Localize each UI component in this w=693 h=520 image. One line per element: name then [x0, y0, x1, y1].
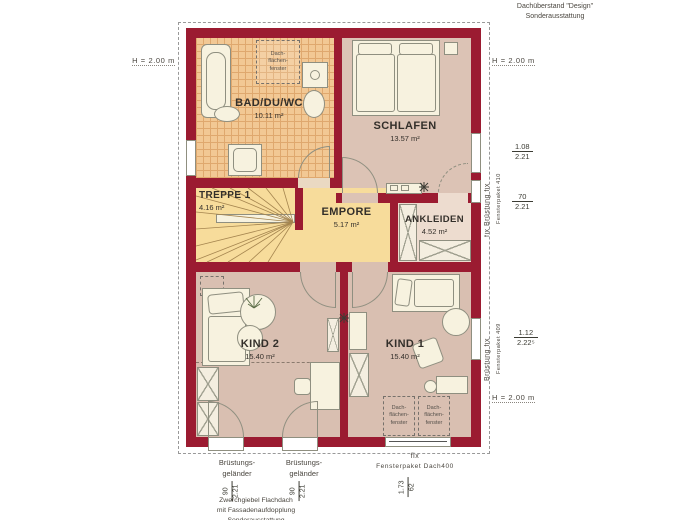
footer-note: Zwerchgiebel Flachdach mit Fassadenaufdo…: [183, 496, 329, 520]
dach400-fix-label: fix: [375, 453, 455, 460]
door-leaf-kind2: [335, 272, 336, 308]
room-area: 15.40 m²: [360, 352, 450, 361]
room-area: 10.11 m²: [210, 111, 328, 120]
room-name: SCHLAFEN: [345, 120, 465, 132]
room-label-schlafen: SCHLAFEN 13.57 m²: [345, 120, 465, 143]
room-name: KIND 2: [215, 338, 305, 350]
room-name: KIND 1: [360, 338, 450, 350]
door-leaf-schlafen: [342, 157, 343, 193]
window-410-label: fix Brüstung fix: [484, 105, 491, 237]
roof-overhang-line: Sonderausstattung: [526, 13, 585, 20]
railing-label-left: Brüstungs- geländer: [203, 458, 271, 480]
railing-line: geländer: [289, 469, 318, 478]
window-410-package: Fensterpaket 410: [496, 118, 502, 224]
footer-line: mit Fassadenaufdopplung: [217, 507, 295, 514]
height-value: H = 2.00 m: [492, 393, 535, 403]
room-area: 13.57 m²: [345, 134, 465, 143]
height-value: H = 2.00 m: [132, 56, 175, 66]
dim-numerator: 1.12: [514, 328, 538, 338]
room-area: 5.17 m²: [303, 220, 390, 229]
plant-symbol: [246, 296, 262, 308]
room-name: TREPPE 1: [199, 190, 291, 201]
dim-denominator: 2.21: [512, 152, 533, 161]
balcony-door-leaf-left: [208, 401, 209, 437]
room-label-treppe: TREPPE 1 4.16 m²: [199, 190, 291, 212]
dach400-package-label: Fensterpaket Dach400: [358, 463, 472, 470]
room-name: BAD/DU/WC: [210, 97, 328, 109]
room-label-bad: BAD/DU/WC 10.11 m²: [210, 97, 328, 120]
light-symbol-kind: [339, 313, 349, 323]
dim-numerator: 1.73: [399, 477, 409, 497]
room-label-empore: EMPORE 5.17 m²: [303, 206, 390, 229]
plan-drawing-overlay: [0, 0, 693, 520]
window-409-label: Brüstung fix: [484, 255, 491, 381]
window-409-package: Fensterpaket 409: [496, 268, 502, 374]
room-label-ankleiden: ANKLEIDEN 4.52 m²: [396, 214, 473, 236]
room-name: EMPORE: [303, 206, 390, 218]
roof-overhang-line: Dachüberstand "Design": [517, 3, 593, 10]
dim-denominator: 62: [408, 477, 417, 497]
dim-denominator: 2.21: [512, 202, 533, 211]
door-leaf-bad: [329, 146, 330, 178]
balcony-door-leaf-right: [317, 401, 318, 437]
railing-line: geländer: [222, 469, 251, 478]
window-410-dim-top: 1.08 2.21: [512, 142, 533, 162]
room-area: 4.16 m²: [199, 203, 291, 212]
railing-line: Brüstungs-: [286, 458, 322, 467]
window-410-dim-bottom: 70 2.21: [512, 192, 533, 212]
room-label-kind2: KIND 2 15.40 m²: [215, 338, 305, 361]
railing-label-right: Brüstungs- geländer: [270, 458, 338, 480]
window-409-dim: 1.12 2.22⁵: [514, 328, 538, 348]
room-area: 15.40 m²: [215, 352, 305, 361]
door-leaf-kind1: [352, 272, 353, 308]
dim-numerator: 70: [512, 192, 533, 202]
floor-plan-canvas: Dach- flächen- fenster Dach- flächen- fe…: [0, 0, 693, 520]
room-area: 4.52 m²: [396, 227, 473, 236]
room-name: ANKLEIDEN: [396, 214, 473, 225]
dach400-dim: 1.73 62: [399, 477, 418, 497]
roof-overhang-note: Dachüberstand "Design" Sonderausstattung: [455, 2, 655, 22]
height-mark-right-top: H = 2.00 m: [492, 56, 535, 65]
dim-numerator: 1.08: [512, 142, 533, 152]
railing-line: Brüstungs-: [219, 458, 255, 467]
light-symbol-schlafen: [419, 182, 429, 192]
height-value: H = 2.00 m: [492, 56, 535, 66]
room-label-kind1: KIND 1 15.40 m²: [360, 338, 450, 361]
footer-line: Zwerchgiebel Flachdach: [219, 497, 293, 504]
height-mark-right-bottom: H = 2.00 m: [492, 393, 535, 402]
dim-denominator: 2.22⁵: [514, 338, 538, 347]
height-mark-left: H = 2.00 m: [118, 56, 175, 65]
